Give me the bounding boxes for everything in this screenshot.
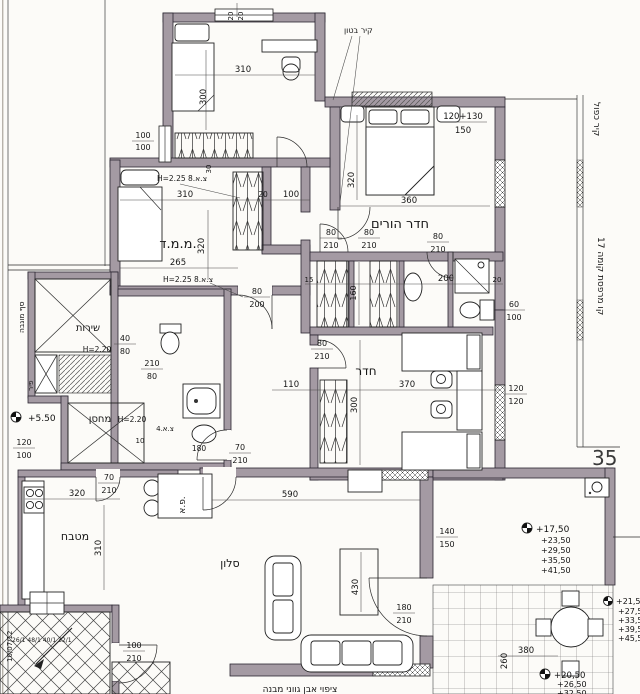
shower: [455, 259, 489, 293]
room-label-safe-room: מ.מ.ד.: [159, 237, 196, 252]
dim-180-210-top: 180: [396, 603, 411, 612]
window-master-right: [495, 160, 505, 207]
sink-hall-bath: [404, 273, 422, 301]
level-marker-bottom: [540, 669, 550, 679]
level-right-4: +45,50: [618, 634, 640, 643]
level-balcony-2: +29,50: [541, 546, 571, 555]
dim-15: 15: [305, 276, 314, 284]
note-shaft: פיר: [26, 380, 35, 391]
kitchen-counter: [22, 481, 44, 599]
chair-1: [282, 57, 300, 80]
stairs-hatch-2: [112, 662, 170, 694]
dim-40-80-bot: 80: [120, 347, 130, 356]
dumbwaiter-box: [30, 592, 64, 614]
dim-70-210-s-bot: 210: [232, 456, 247, 465]
dim-80-210-b-bot: 210: [361, 241, 376, 250]
dim-300-bedroom2: 300: [350, 397, 360, 413]
storage-x: [68, 403, 144, 463]
dim-60-100-bot: 100: [506, 313, 521, 322]
sofa-vertical: [265, 556, 301, 640]
closet-hall-1: [317, 261, 348, 327]
dim-60-100-top: 60: [509, 300, 519, 309]
toilet-left: [160, 324, 181, 354]
dim-310-bedroom1: 310: [235, 65, 251, 75]
toilet-hall: [460, 300, 494, 320]
desk-2: [457, 371, 482, 430]
dim-30: 30: [205, 165, 213, 174]
note-raised-sill: סף מוגבה: [17, 301, 26, 333]
dim-20-mamad: 20: [258, 190, 268, 199]
level-balcony-3: +35,50: [541, 556, 571, 565]
dim-200: 200: [438, 274, 454, 284]
bathtub: [183, 384, 220, 418]
note-ceiling-vent-1: H=2.25 צ.א.8: [157, 174, 207, 183]
sheet-revision: 10/07/12: [6, 631, 14, 662]
level-balcony-1: +23,50: [541, 536, 571, 545]
room-label-service-balcony: שירות: [76, 323, 100, 334]
dim-80-210-c-bot: 210: [430, 245, 445, 254]
level-marker-balcony: [522, 523, 532, 533]
dim-40-80-top: 40: [120, 334, 130, 343]
dim-320-master: 320: [347, 172, 357, 188]
dim-100-210-bot: 210: [126, 654, 141, 663]
dim-210-80-top: 210: [144, 359, 159, 368]
note-balcony-line: קו מרפסת קומה 17: [595, 237, 605, 315]
dim-320-kitchen: 320: [69, 489, 85, 499]
closet-hall-2: [370, 261, 397, 327]
dim-70-210-k-top: 70: [104, 473, 114, 482]
dim-310-mamad: 310: [177, 190, 193, 200]
dim-320-mamad: 320: [197, 238, 207, 254]
dim-180-tub: 180: [192, 444, 207, 453]
dim-110: 110: [283, 380, 299, 390]
bed-mamad: [118, 170, 162, 261]
bed-single-2: [402, 333, 482, 371]
dim-80-200-bot: 200: [249, 300, 264, 309]
level-right-2: +33,50: [618, 616, 640, 625]
dim-100-210-top: 100: [126, 641, 141, 650]
shaft-hatch: [59, 355, 111, 393]
dim-80-200-top: 80: [252, 287, 262, 296]
service-balcony-x: [35, 279, 111, 352]
dim-80-210-a-bot: 210: [323, 241, 338, 250]
dim-100-hall: 100: [283, 190, 299, 200]
dim-265: 265: [170, 258, 186, 268]
sheet-bottom-note: ציפוי אבן גווני מבנה: [263, 685, 338, 694]
dim-300-bedroom1: 300: [199, 89, 209, 105]
level-bottom-1: +26,50: [557, 680, 587, 689]
room-label-master-bedroom: חדר הורים: [371, 217, 429, 232]
level-bottom-2: +32,50: [557, 689, 587, 694]
dim-100-100-bot: 100: [135, 143, 150, 152]
level-right-3: +39,50: [618, 625, 640, 634]
dim-100-100-top: 100: [135, 131, 150, 140]
dim-590: 590: [282, 490, 298, 500]
chair-2: [431, 371, 452, 388]
scanned-floor-plan-sheet: חדר הורים מ.מ.ד. חדר מטבח סלון שירות מחס…: [0, 0, 640, 694]
bed-single-3: [402, 432, 482, 470]
level-right-1: +27,50: [618, 607, 640, 616]
dim-80-210-a-top: 80: [326, 228, 336, 237]
dim-120p130: 120+130: [443, 112, 483, 122]
dim-120-120-bot: 120: [508, 397, 523, 406]
room-label-dining-nook: פ.א.: [178, 496, 188, 513]
dim-80-210-d-top: 80: [317, 339, 327, 348]
note-double-wall: קיר כפול: [591, 102, 601, 136]
dim-120-100-top: 120: [16, 438, 31, 447]
closet-bedroom1: [175, 133, 253, 158]
dim-70-210-s-top: 70: [235, 443, 245, 452]
dim-310-kitchen: 310: [94, 540, 104, 556]
window-bedroom1-left: [159, 126, 171, 162]
dim-80-210-d-bot: 210: [314, 352, 329, 361]
closet-master-hatch: [352, 92, 432, 106]
note-concrete-wall: קיר בטון: [344, 26, 373, 35]
note-h220-service: H=2.20: [83, 345, 112, 354]
chair-3: [431, 401, 452, 418]
dim-10: 10: [136, 437, 145, 445]
cabinet: [348, 470, 382, 492]
room-label-living-room: סלון: [220, 557, 239, 570]
closet-mamad: [233, 172, 263, 250]
dim-380: 380: [518, 646, 534, 656]
room-label-kitchen: מטבח: [61, 530, 89, 543]
room-label-storage: מחסן: [89, 414, 112, 425]
level-right-0: +21,50: [616, 597, 640, 606]
dim-140-150-top: 140: [439, 527, 454, 536]
dim-150: 150: [455, 126, 471, 136]
dim-20-shower: 20: [493, 276, 502, 284]
dim-260: 260: [500, 653, 510, 669]
balcony-drain-box: [585, 478, 609, 497]
dim-120-100-bot: 100: [16, 451, 31, 460]
note-ceiling-vent-2: H=2.25 צ.א.8: [163, 275, 213, 284]
dim-80-210-b-top: 80: [364, 228, 374, 237]
floor-plan-svg: חדר הורים מ.מ.ד. חדר מטבח סלון שירות מחס…: [0, 0, 640, 694]
sheet-number: 35: [592, 446, 617, 470]
window-bedroom-right: [495, 385, 505, 440]
dim-20-top-a: 20: [227, 12, 235, 21]
level-balcony-0: +17,50: [536, 525, 570, 535]
dim-180-210-bot: 210: [396, 616, 411, 625]
level-entry: +5.50: [28, 414, 56, 424]
dim-70-210-k-bot: 210: [101, 486, 116, 495]
level-balcony-4: +41,50: [541, 566, 571, 575]
dim-430: 430: [351, 579, 361, 595]
dim-360-master: 360: [401, 196, 417, 206]
note-vent-4: צ.א.4: [156, 425, 174, 433]
level-marker-entry: [11, 412, 21, 422]
dim-370: 370: [399, 380, 415, 390]
dim-80-210-c-top: 80: [433, 232, 443, 241]
level-marker-right: [604, 597, 613, 606]
sofa-horizontal: [301, 635, 413, 672]
note-stairs: 26/1 48/1 40/1 32/1: [12, 637, 72, 644]
note-h220-storage: H=2.20: [118, 415, 147, 424]
stairs-hatch: [0, 612, 110, 694]
closet-bedroom2: [320, 380, 347, 463]
shaft-x: [35, 355, 57, 393]
dim-210-80-bot: 80: [147, 372, 157, 381]
dim-140-150-bot: 150: [439, 540, 454, 549]
room-label-bedroom: חדר: [355, 364, 376, 378]
desk-1: [262, 40, 317, 52]
dim-20-top-b: 20: [237, 12, 245, 21]
dim-160: 160: [349, 285, 358, 300]
dim-120-120-top: 120: [508, 384, 523, 393]
bed-master: [341, 106, 460, 195]
